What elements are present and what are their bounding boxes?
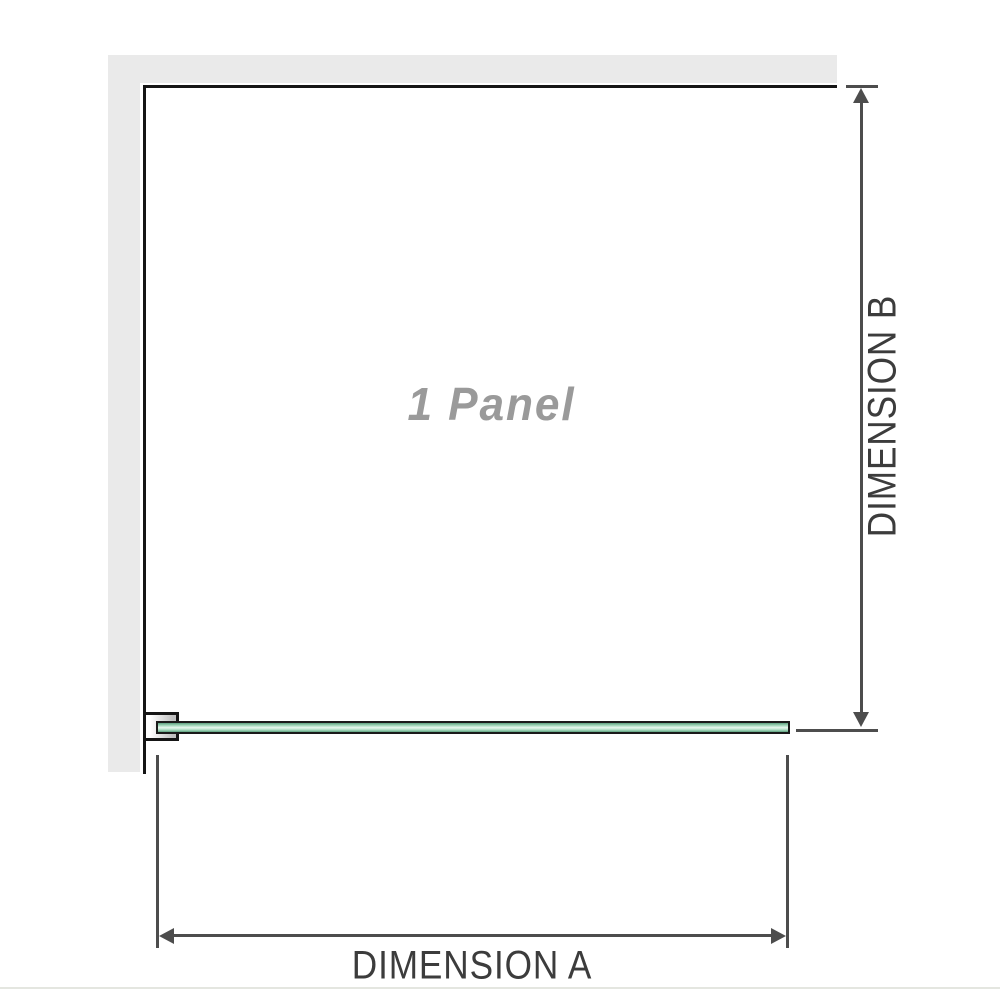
- arrow-right-icon: [771, 928, 786, 944]
- wall-top-bar: [108, 55, 837, 83]
- dimension-b-label: DIMENSION B: [861, 295, 906, 537]
- baseline-divider: [0, 987, 1000, 989]
- panel-area: 1 Panel: [146, 88, 837, 720]
- arrow-down-icon: [853, 712, 869, 727]
- dimension-a-left-extension-line: [156, 755, 159, 948]
- arrow-left-icon: [159, 928, 174, 944]
- panel-dimension-diagram: 1 Panel DIMENSION B DIMENSION A: [0, 0, 1000, 1000]
- wall-left-bar: [108, 55, 140, 772]
- glass-panel-top-view: [156, 721, 790, 734]
- dimension-a-label: DIMENSION A: [352, 944, 592, 989]
- dimension-a-right-extension-line: [786, 755, 789, 948]
- arrow-up-icon: [853, 88, 869, 103]
- panel-count-label: 1 Panel: [407, 377, 575, 431]
- dimension-b-bottom-tick: [796, 729, 878, 732]
- dimension-a-line: [170, 934, 776, 937]
